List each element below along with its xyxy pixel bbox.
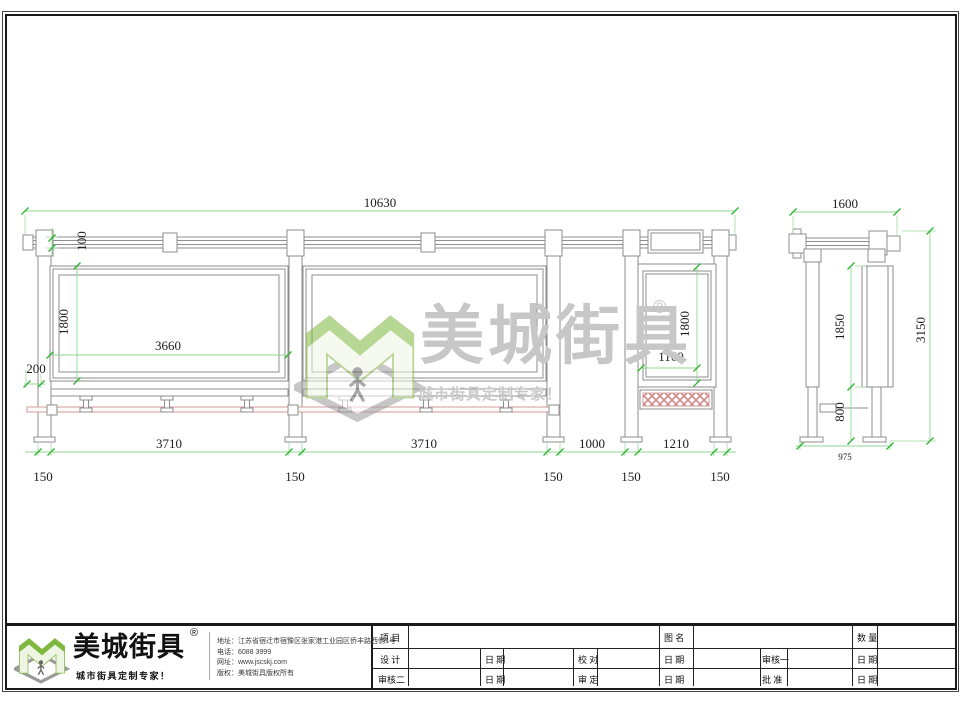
dim-side-base-span: 975 — [838, 452, 852, 462]
bench-seat-left — [51, 389, 288, 396]
rail-bracket-3 — [549, 405, 559, 415]
lightbox-base-hatch-panel — [640, 390, 712, 409]
footer-logo-icon — [14, 630, 70, 684]
beam-clamp-mid-1 — [163, 233, 177, 252]
dim-panel-height: 1800 — [56, 309, 71, 335]
dim-side-width: 1600 — [832, 196, 858, 211]
rail-bracket-1 — [47, 405, 57, 415]
dim-total-width: 10630 — [364, 195, 397, 210]
tb-label-drawing-name: 图 名 — [664, 631, 684, 644]
side-panel-edge — [862, 266, 893, 387]
footer-copyright: 版权：美城街具版权所有 — [217, 669, 396, 680]
dim-side-lower-height: 800 — [832, 402, 847, 422]
tb-label-date-2: 日 期 — [664, 653, 684, 666]
header-sign — [648, 230, 703, 253]
tb-label-date-3: 日 期 — [857, 653, 877, 666]
watermark-brand-text: 美城街具 — [420, 304, 692, 368]
tb-label-date-4: 日 期 — [485, 673, 505, 686]
beam-end-cap-left — [23, 235, 33, 250]
footer-address: 地址：江苏省宿迁市宿豫区张家港工业园区侨丰路西侧1号 — [217, 637, 396, 648]
side-view: 1600 3150 1850 800 — [789, 196, 936, 462]
tb-label-date-1: 日 期 — [485, 653, 505, 666]
dim-post2-width: 150 — [285, 469, 305, 484]
watermark-logo-icon — [294, 296, 426, 423]
footer-tagline: 城市街具定制专家！ — [76, 669, 171, 682]
dim-gap: 1000 — [579, 436, 605, 451]
footer-contact-info: 地址：江苏省宿迁市宿豫区张家港工业园区侨丰路西侧1号 电话：6088 3999 … — [217, 637, 396, 679]
dim-side-panel-height: 1850 — [832, 314, 847, 340]
tb-label-quantity: 数 量 — [857, 631, 877, 644]
tb-label-reviewer2: 审核二 — [378, 673, 405, 686]
dim-bay1: 3710 — [156, 436, 182, 451]
tb-label-approve: 批 准 — [762, 673, 782, 686]
dim-bay2: 3710 — [411, 436, 437, 451]
footer-phone: 电话：6088 3999 — [217, 648, 396, 659]
dim-beam-height: 100 — [74, 231, 89, 251]
dim-panel-width: 3660 — [155, 338, 181, 353]
dim-post3-width: 150 — [543, 469, 563, 484]
tb-label-proofread: 校 对 — [578, 653, 598, 666]
side-post-left — [800, 249, 823, 442]
ad-panel-1 — [50, 266, 288, 381]
dim-post1-width: 150 — [33, 469, 53, 484]
drawing-sheet: 10630 100 1800 3660 — [0, 0, 960, 704]
dim-side-total-height: 3150 — [913, 317, 928, 343]
tb-label-reviewer1: 审核一 — [762, 653, 789, 666]
dim-post5-width: 150 — [710, 469, 730, 484]
beam-clamp-mid-2 — [421, 233, 435, 252]
footer-website: 网址：www.jscskj.com — [217, 658, 396, 669]
footer-registered-icon: ® — [190, 627, 198, 639]
tb-label-project: 项 目 — [380, 631, 400, 644]
tb-label-ratify: 审 定 — [578, 673, 598, 686]
footer-vertical-divider — [209, 632, 210, 680]
footer-brand-text: 美城街具 — [73, 634, 185, 661]
dim-lightbox-bay: 1210 — [663, 436, 689, 451]
dim-post4-width: 150 — [621, 469, 641, 484]
tb-row-line-2 — [372, 668, 955, 669]
title-block-table: 项 目 图 名 数 量 设 计 日 期 校 对 日 期 审核一 日 期 审核二 … — [372, 623, 955, 688]
dim-overhang: 200 — [26, 361, 46, 376]
tb-label-date-6: 日 期 — [857, 673, 877, 686]
tb-label-design: 设 计 — [380, 653, 400, 666]
watermark-registered-icon: ® — [653, 297, 666, 318]
tb-label-date-5: 日 期 — [664, 673, 684, 686]
watermark-tagline: 城市街具定制专家！ — [418, 383, 562, 404]
tb-row-line-1 — [372, 648, 955, 649]
side-beam-cap-left — [789, 234, 806, 253]
side-beam-cap-right — [887, 236, 900, 251]
